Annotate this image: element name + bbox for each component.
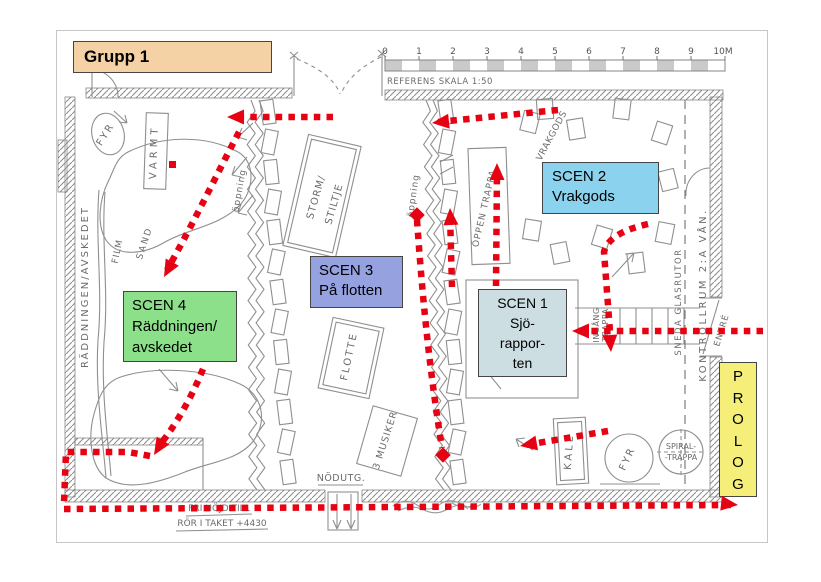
ruler-tick-1: 1 xyxy=(416,47,422,57)
scene2-subtitle: Vrakgods xyxy=(552,187,658,207)
door-arc-right xyxy=(686,168,710,196)
zigzag-right-a xyxy=(423,100,444,490)
emergency-exit-doors xyxy=(328,492,358,530)
label-kontrollrum: KONTROLLRUM 2:A VÅN. xyxy=(696,208,709,382)
ruler-caption: REFERENS SKALA 1:50 xyxy=(387,77,493,87)
label-varmt: VARMT xyxy=(148,124,161,179)
prolog-label-box: P R O L O G xyxy=(719,362,757,497)
ruler-tick-3: 3 xyxy=(484,47,490,57)
label-spiral-1: SPIRAL- xyxy=(666,442,696,451)
scene4-line2: avskedet xyxy=(132,337,236,358)
label-fyr-bottom: FYR xyxy=(618,445,638,472)
label-storm: STORM/ xyxy=(305,174,328,221)
label-ingang: INGÅNG xyxy=(590,307,601,342)
film-strip xyxy=(97,190,111,478)
prolog-letter: L xyxy=(720,431,756,453)
label-vrakgods-sketch: VRAKGODS xyxy=(535,110,570,163)
scene4-label-box: SCEN 4 Räddningen/ avskedet xyxy=(123,291,237,362)
scene1-line1: Sjö- xyxy=(479,313,566,333)
label-flotte: FLOTTE xyxy=(339,331,360,381)
ruler-tick-5: 5 xyxy=(552,47,558,57)
scan-frame xyxy=(57,31,768,543)
scene1-label-box: SCEN 1 Sjö- rappor- ten xyxy=(478,289,567,377)
reference-ruler: 0 1 2 3 4 5 6 7 8 9 10M REFERENS SKALA 1… xyxy=(382,47,732,87)
label-sand-top: SAND xyxy=(135,226,155,261)
ruler-tick-0: 0 xyxy=(382,47,388,57)
double-doors-top xyxy=(290,50,386,96)
scene2-title: SCEN 2 xyxy=(552,167,658,187)
raft-planks-left xyxy=(260,99,296,485)
prolog-letter: O xyxy=(720,409,756,431)
group-label-box: Grupp 1 xyxy=(73,41,272,73)
scene2-label-box: SCEN 2 Vrakgods xyxy=(542,162,659,214)
label-oppning-right: öppning xyxy=(406,173,422,218)
group-label: Grupp 1 xyxy=(84,47,149,66)
label-spiral-2: -TRAPPA xyxy=(665,453,698,462)
scene1-line3: ten xyxy=(479,353,566,373)
scene1-line2: rappor- xyxy=(479,333,566,353)
scene1-title: SCEN 1 xyxy=(479,293,566,313)
zigzag-left-a xyxy=(247,100,257,490)
zigzag-left-b xyxy=(255,100,265,490)
ruler-tick-8: 8 xyxy=(654,47,660,57)
prolog-letter: P xyxy=(720,366,756,388)
ruler-tick-2: 2 xyxy=(450,47,456,57)
label-fyr-top: FYR xyxy=(95,121,117,148)
label-kall: KALL xyxy=(563,433,577,470)
ruler-tick-10: 10M xyxy=(713,47,732,57)
label-nodutg: NÖDUTG. xyxy=(317,473,366,484)
ruler-tick-9: 9 xyxy=(688,47,694,57)
ruler-tick-7: 7 xyxy=(620,47,626,57)
label-sneda-glas: SNEDA GLASRUTOR xyxy=(674,248,684,355)
label-fri-hojd-2: RÖR I TAKET +4430 xyxy=(177,518,267,529)
scribble-note xyxy=(393,501,481,513)
prolog-letter: G xyxy=(720,474,756,496)
label-fri-hojd-1: FRI HÖJD TILL xyxy=(188,503,249,514)
label-ingang-trappa: TRAPPA xyxy=(601,308,610,342)
label-stiltje: STILTJE xyxy=(324,183,346,226)
prolog-letter: R xyxy=(720,388,756,410)
scene3-subtitle: På flotten xyxy=(319,281,402,301)
scene4-line1: Räddningen/ xyxy=(132,316,236,337)
label-musiker: 3 MUSIKER xyxy=(371,410,400,471)
ruler-tick-6: 6 xyxy=(586,47,592,57)
prolog-letter: O xyxy=(720,452,756,474)
label-oppen-trappa: ÖPPEN TRAPPA xyxy=(470,169,499,249)
stage-plan-page: 0 1 2 3 4 5 6 7 8 9 10M REFERENS SKALA 1… xyxy=(0,0,821,582)
label-raddningen-wall: RÄDDNINGEN/AVSKEDET xyxy=(78,206,91,368)
ruler-tick-4: 4 xyxy=(518,47,524,57)
sand-area-bottom xyxy=(91,370,262,485)
scene3-label-box: SCEN 3 På flotten xyxy=(310,256,403,308)
scene3-title: SCEN 3 xyxy=(319,261,402,281)
sand-area-top xyxy=(100,139,251,252)
scene4-title: SCEN 4 xyxy=(132,295,236,316)
